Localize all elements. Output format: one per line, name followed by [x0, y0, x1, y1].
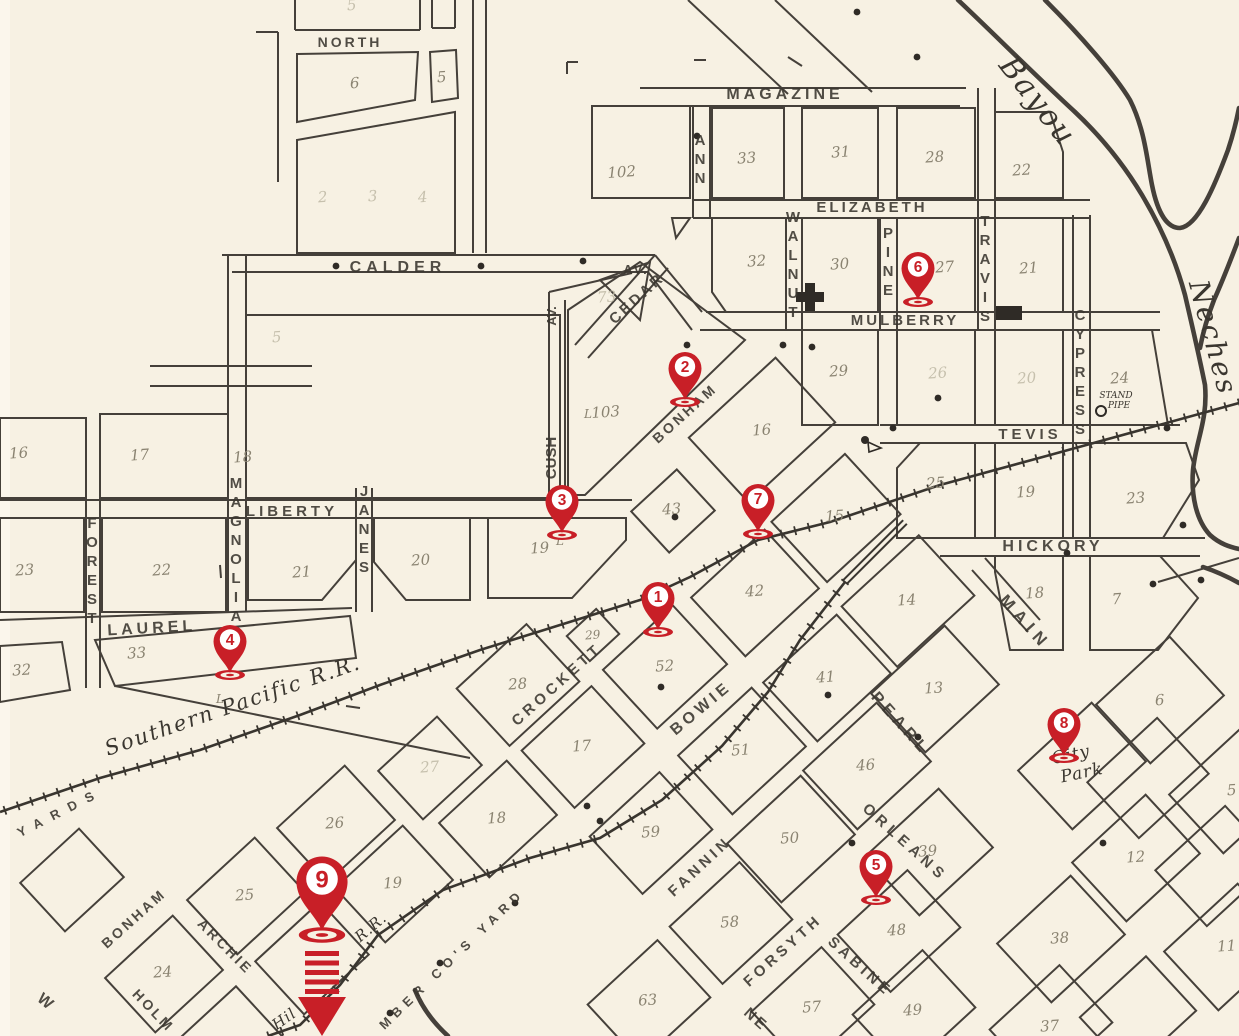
map-dot: [1198, 577, 1205, 584]
map-dot: [809, 344, 816, 351]
map-dot: [825, 692, 832, 699]
block-number: 11: [1216, 936, 1236, 955]
block-number: 5: [1226, 781, 1237, 800]
arrow-stripe: [305, 970, 339, 975]
map-dot: [333, 263, 340, 270]
block-number: 22: [151, 560, 172, 579]
pin-shadow-core: [316, 933, 328, 937]
pin-number: 1: [654, 589, 663, 606]
block-number: 29: [584, 627, 602, 642]
block-number: 32: [11, 660, 31, 679]
survey-mark: L: [215, 692, 224, 706]
block-number: 17: [571, 736, 592, 755]
block-number: 24: [152, 962, 173, 981]
building-footprint: [996, 306, 1022, 320]
map-dot: [854, 9, 861, 16]
map-dot: [890, 425, 897, 432]
block-number: 57: [801, 997, 822, 1016]
street-label: MAGAZINE: [726, 86, 843, 103]
block-number: 42: [744, 581, 765, 600]
block-number: 22: [1011, 160, 1032, 179]
block-number: 19: [529, 538, 550, 557]
block-number: 33: [736, 148, 756, 167]
block-number: 26: [324, 813, 346, 832]
pin-shadow-core: [654, 631, 662, 633]
block-number: 13: [923, 678, 943, 697]
block-number: 46: [855, 755, 877, 774]
block-number: 32: [746, 251, 766, 270]
block-number: 5: [271, 328, 282, 347]
block-number: 52: [654, 656, 674, 675]
block-number: 27: [934, 257, 956, 276]
block-number: 6: [349, 74, 360, 93]
arrow-stripe: [305, 951, 339, 956]
block-number: 21: [1018, 258, 1039, 277]
street-label: TEVIS: [998, 426, 1061, 443]
survey-mark: L: [583, 407, 592, 421]
block-number: 23: [1125, 488, 1146, 507]
pin-shadow-core: [558, 534, 566, 536]
street-label-rotated: AV.: [544, 306, 559, 326]
church-cross-icon: [805, 283, 815, 311]
pin-shadow-core: [681, 401, 689, 403]
map-dot: [1180, 522, 1187, 529]
block-number: 39: [917, 841, 938, 860]
block-number: 43: [661, 499, 682, 518]
pin-shadow-core: [1060, 757, 1068, 759]
block-number: 37: [1039, 1016, 1060, 1035]
block-number: 73: [596, 287, 616, 306]
block-number: 19: [1015, 482, 1036, 501]
arrow-stripe: [305, 980, 339, 985]
block-number: 12: [1125, 847, 1145, 866]
map-dot: [935, 395, 942, 402]
block-number: 18: [486, 808, 506, 827]
map-dot: [914, 54, 921, 61]
block-number: 28: [507, 674, 528, 693]
map-dot: [580, 258, 587, 265]
block-number: 17: [129, 445, 150, 464]
block-number: 27: [419, 757, 441, 776]
block-number: 18: [232, 447, 252, 466]
map-dot: [584, 803, 591, 810]
block-number: 23: [14, 560, 35, 579]
block-number: 16: [751, 420, 772, 439]
map-canvas: NORTHCALDERAV.MAGAZINEELIZABETHMULBERRYT…: [0, 0, 1239, 1036]
block-number: 5: [436, 68, 447, 87]
street-label: HICKORY: [1002, 538, 1103, 555]
block-number: 30: [829, 254, 850, 273]
street-label: CALDER: [350, 259, 447, 276]
block-number: 4: [416, 188, 428, 207]
pin-number: 8: [1060, 715, 1069, 732]
block-number: 5: [346, 0, 357, 14]
map-dot: [1164, 425, 1171, 432]
block-number: 16: [8, 443, 29, 462]
map-dot: [1150, 581, 1157, 588]
pin-shadow-core: [914, 301, 922, 303]
block-number: 6: [1154, 691, 1165, 710]
block-number: 49: [902, 1000, 924, 1019]
arrow-stripe: [305, 961, 339, 966]
arrow-stripe: [305, 989, 339, 994]
block-number: 103: [591, 402, 621, 422]
street-label-vertical: ANN: [695, 132, 706, 187]
block-number: 41: [815, 667, 836, 686]
map-dot: [597, 818, 604, 825]
pin-number: 2: [681, 359, 690, 376]
block-number: 25: [234, 885, 255, 904]
street-label: AV.: [623, 262, 649, 277]
block-number: 24: [1109, 368, 1130, 387]
street-label: LIBERTY: [246, 503, 338, 520]
block-number: 20: [1016, 368, 1038, 387]
block-number: 18: [1024, 583, 1044, 602]
block-number: 21: [291, 562, 312, 581]
block-number: 50: [779, 828, 800, 847]
pin-shadow-core: [226, 674, 234, 676]
map-dot: [849, 840, 856, 847]
block-number: 15: [824, 506, 844, 525]
block-number: 31: [830, 142, 850, 161]
block-number: 29: [828, 361, 850, 380]
street-label: ELIZABETH: [816, 199, 927, 216]
historic-map: NORTHCALDERAV.MAGAZINEELIZABETHMULBERRYT…: [0, 0, 1239, 1036]
block-number: 58: [719, 912, 739, 931]
street-label-rotated: CUSH: [543, 437, 560, 480]
block-number: 20: [410, 550, 432, 569]
block-number: 26: [927, 363, 949, 382]
block-number: 2: [316, 188, 328, 207]
block-number: 102: [607, 162, 637, 182]
block-number: 48: [886, 920, 907, 939]
map-dot: [780, 342, 787, 349]
block-number: 7: [1111, 590, 1122, 609]
map-dot: [478, 263, 485, 270]
block-number: 25: [925, 473, 946, 492]
street-label-vertical: CYPRESS: [1075, 307, 1086, 438]
pin-shadow-core: [754, 533, 762, 535]
block-number: 19: [382, 873, 403, 892]
pin-number: 3: [558, 492, 567, 509]
block-number: 3: [367, 187, 378, 206]
block-number: 59: [640, 822, 661, 841]
pin-shadow-core: [872, 899, 880, 901]
street-label: NORTH: [318, 34, 383, 50]
map-dot: [658, 684, 665, 691]
pin-number: 9: [315, 867, 328, 894]
street-label-vertical: JANES: [359, 483, 370, 576]
block-number: 33: [126, 643, 146, 662]
street-label: MULBERRY: [851, 312, 959, 329]
block-number: 28: [924, 147, 945, 166]
pin-number: 5: [872, 857, 881, 874]
script-label: PIPE: [1107, 401, 1131, 411]
map-dot: [684, 342, 691, 349]
pin-number: 7: [754, 491, 763, 508]
block-number: 51: [730, 740, 750, 759]
street-line: [220, 565, 221, 578]
pin-number: 4: [226, 632, 235, 649]
map-dot: [1100, 840, 1107, 847]
pin-number: 6: [914, 259, 923, 276]
block-number: 14: [896, 590, 916, 609]
block-number: 63: [637, 990, 657, 1009]
block-number: 38: [1049, 928, 1069, 947]
script-label: STAND: [1099, 391, 1132, 401]
